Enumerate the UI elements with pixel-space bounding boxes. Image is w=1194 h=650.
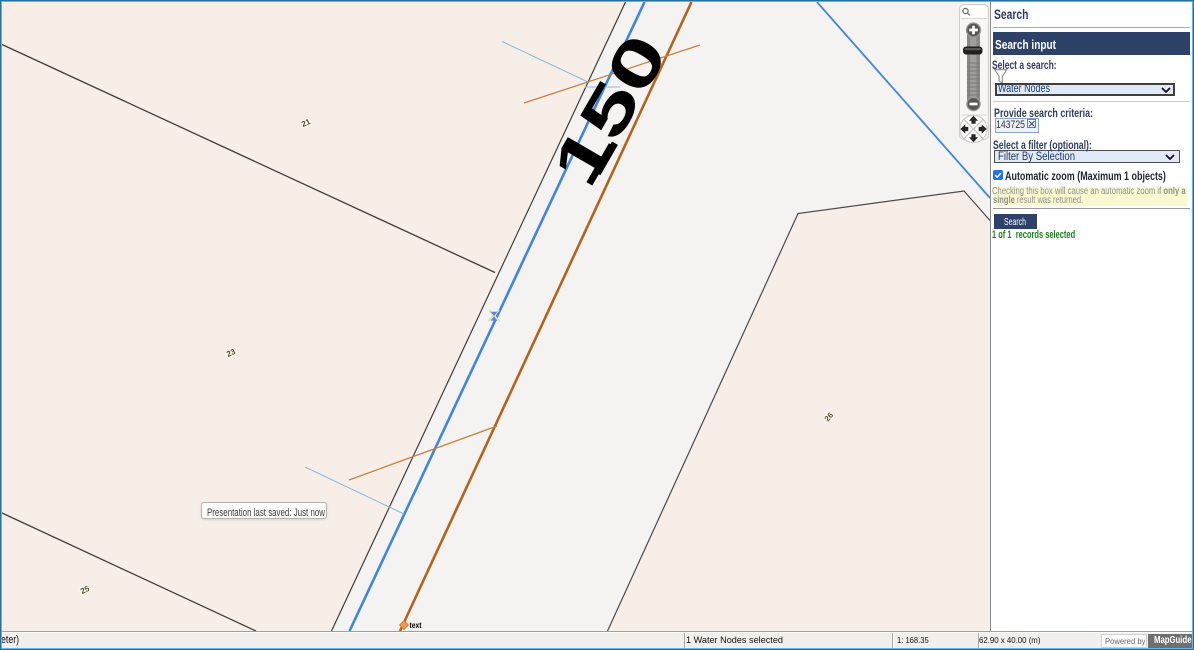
svg-text:text: text	[410, 620, 422, 630]
